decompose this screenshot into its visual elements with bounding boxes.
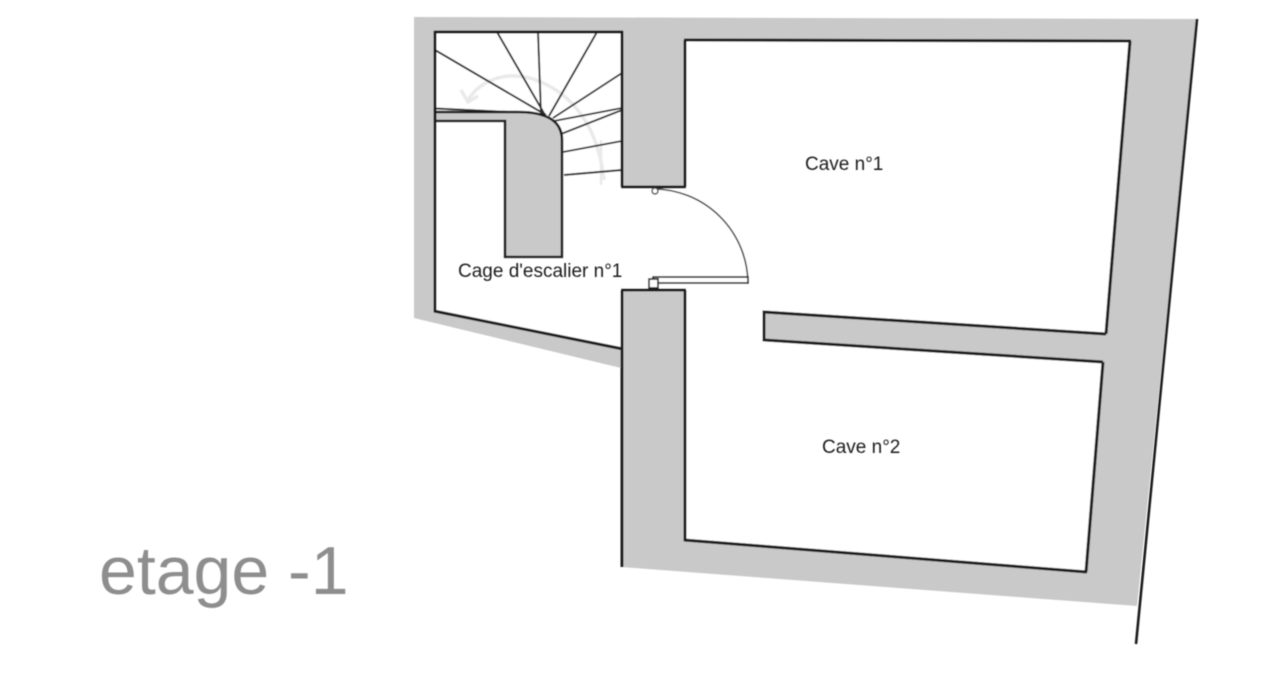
svg-text:Cave n°1: Cave n°1 [805, 154, 883, 175]
svg-text:Cage d'escalier n°1: Cage d'escalier n°1 [458, 261, 622, 282]
svg-text:etage -1: etage -1 [99, 533, 349, 609]
svg-text:Cave n°2: Cave n°2 [822, 437, 900, 458]
